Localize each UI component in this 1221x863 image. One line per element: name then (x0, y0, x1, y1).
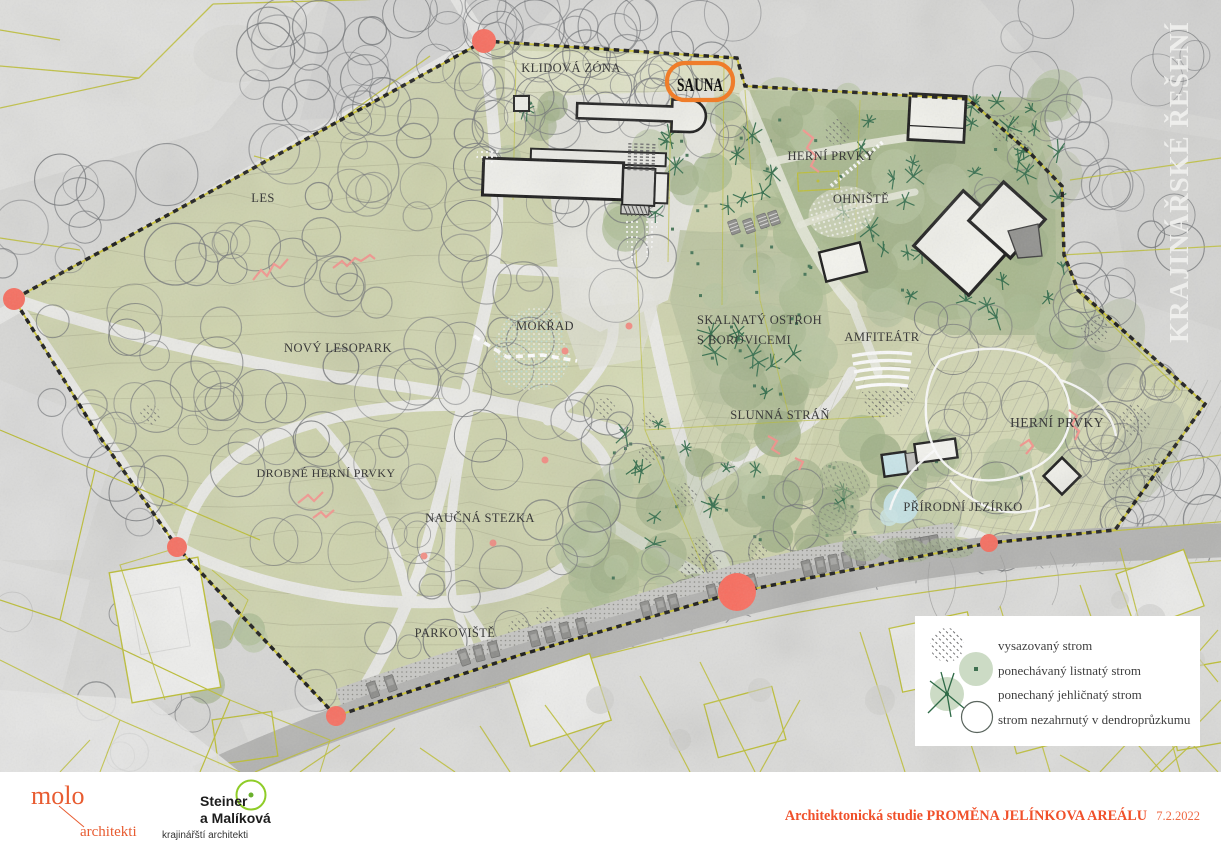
svg-text:KLIDOVÁ ZÓNA: KLIDOVÁ ZÓNA (521, 61, 621, 75)
svg-text:HERNÍ PRVKY: HERNÍ PRVKY (787, 149, 874, 163)
svg-text:HERNÍ PRVKY: HERNÍ PRVKY (1010, 415, 1104, 430)
svg-text:SKALNATÝ OSTROH: SKALNATÝ OSTROH (697, 313, 822, 327)
svg-text:krajinářští architekti: krajinářští architekti (162, 830, 248, 841)
svg-text:Architektonická studie PROMĚNA: Architektonická studie PROMĚNA JELÍNKOVA… (785, 807, 1147, 824)
svg-text:PARKOVIŠTĚ: PARKOVIŠTĚ (415, 626, 496, 640)
svg-text:architekti: architekti (80, 824, 137, 840)
svg-text:ponechávaný listnatý strom: ponechávaný listnatý strom (998, 663, 1141, 678)
svg-text:a Malíková: a Malíková (200, 810, 271, 826)
svg-text:AMFITEÁTR: AMFITEÁTR (844, 330, 919, 344)
svg-text:SAUNA: SAUNA (677, 75, 723, 96)
svg-text:NOVÝ LESOPARK: NOVÝ LESOPARK (284, 341, 392, 355)
svg-text:strom nezahrnutý v dendroprůzk: strom nezahrnutý v dendroprůzkumu (998, 712, 1191, 727)
svg-text:NAUČNÁ STEZKA: NAUČNÁ STEZKA (425, 511, 535, 525)
svg-text:7.2.2022: 7.2.2022 (1156, 809, 1200, 823)
svg-text:PŘÍRODNÍ JEZÍRKO: PŘÍRODNÍ JEZÍRKO (903, 500, 1022, 514)
svg-text:OHNIŠTĚ: OHNIŠTĚ (833, 192, 889, 206)
svg-text:MOKŘAD: MOKŘAD (516, 319, 574, 333)
svg-text:LES: LES (251, 191, 274, 205)
svg-text:vysazovaný strom: vysazovaný strom (998, 638, 1092, 653)
svg-text:S BOROVICEMI: S BOROVICEMI (697, 333, 791, 347)
svg-text:ponechaný jehličnatý strom: ponechaný jehličnatý strom (998, 687, 1142, 702)
svg-text:Steiner: Steiner (200, 793, 248, 809)
svg-text:KRAJINÁŘSKÉ ŘEŠENÍ: KRAJINÁŘSKÉ ŘEŠENÍ (1164, 21, 1194, 343)
svg-text:SLUNNÁ STRÁŇ: SLUNNÁ STRÁŇ (730, 408, 830, 422)
svg-text:DROBNÉ HERNÍ PRVKY: DROBNÉ HERNÍ PRVKY (257, 466, 396, 480)
svg-text:molo: molo (31, 781, 84, 810)
